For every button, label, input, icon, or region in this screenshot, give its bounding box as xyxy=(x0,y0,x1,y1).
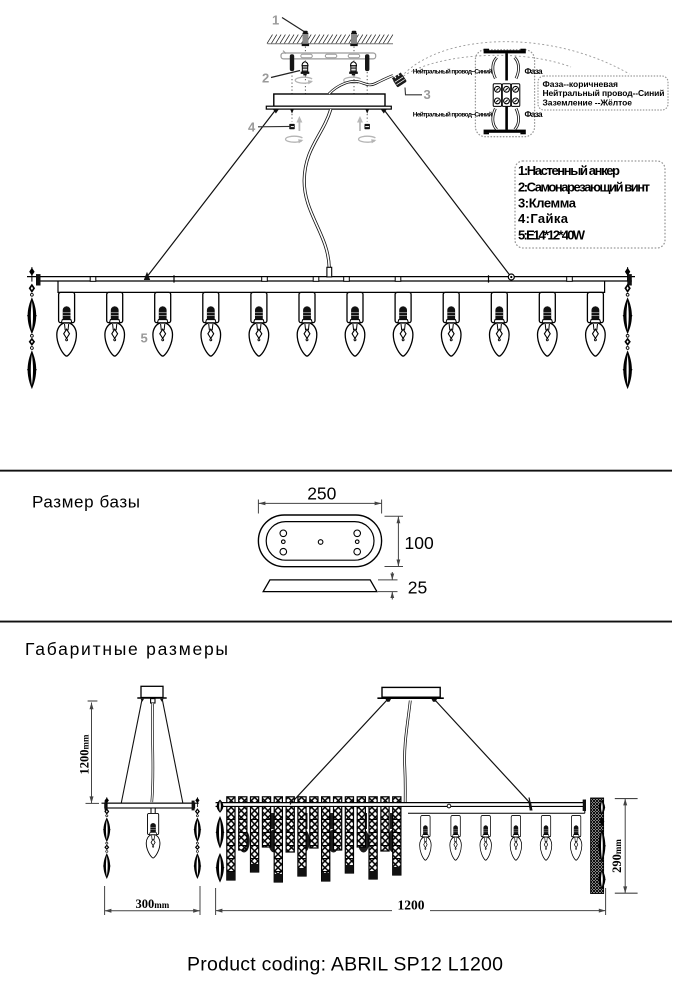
svg-text:5:E14*12*40W: 5:E14*12*40W xyxy=(518,227,586,242)
svg-text:1200: 1200 xyxy=(398,898,425,913)
svg-text:4:Гайка: 4:Гайка xyxy=(518,211,569,226)
svg-text:Фаза: Фаза xyxy=(525,67,543,76)
svg-text:5: 5 xyxy=(141,331,148,346)
svg-text:Нейтральный провод--Синий: Нейтральный провод--Синий xyxy=(413,110,493,118)
svg-text:4: 4 xyxy=(248,120,256,135)
svg-text:Размер базы: Размер базы xyxy=(32,493,140,512)
svg-text:25: 25 xyxy=(408,577,427,597)
svg-text:Product coding: ABRIL SP12 L12: Product coding: ABRIL SP12 L1200 xyxy=(187,954,503,976)
svg-text:3: 3 xyxy=(424,87,431,102)
svg-text:300mm: 300mm xyxy=(136,897,170,911)
svg-text:1200mm: 1200mm xyxy=(77,734,91,774)
svg-text:Нейтральный провод--Синий: Нейтральный провод--Синий xyxy=(413,67,493,75)
svg-text:1:Настенный анкер: 1:Настенный анкер xyxy=(518,163,620,178)
svg-text:290mm: 290mm xyxy=(610,839,624,873)
svg-text:1: 1 xyxy=(272,13,279,28)
svg-text:100: 100 xyxy=(405,533,434,553)
svg-text:Фаза: Фаза xyxy=(525,110,543,119)
svg-text:2: 2 xyxy=(262,71,269,86)
svg-text:Заземление --Жёлтое: Заземление --Жёлтое xyxy=(543,98,633,108)
svg-text:250: 250 xyxy=(307,484,336,504)
svg-text:3:Клемма: 3:Клемма xyxy=(518,196,577,211)
svg-text:2:Самонарезающий винт: 2:Самонарезающий винт xyxy=(518,179,650,194)
